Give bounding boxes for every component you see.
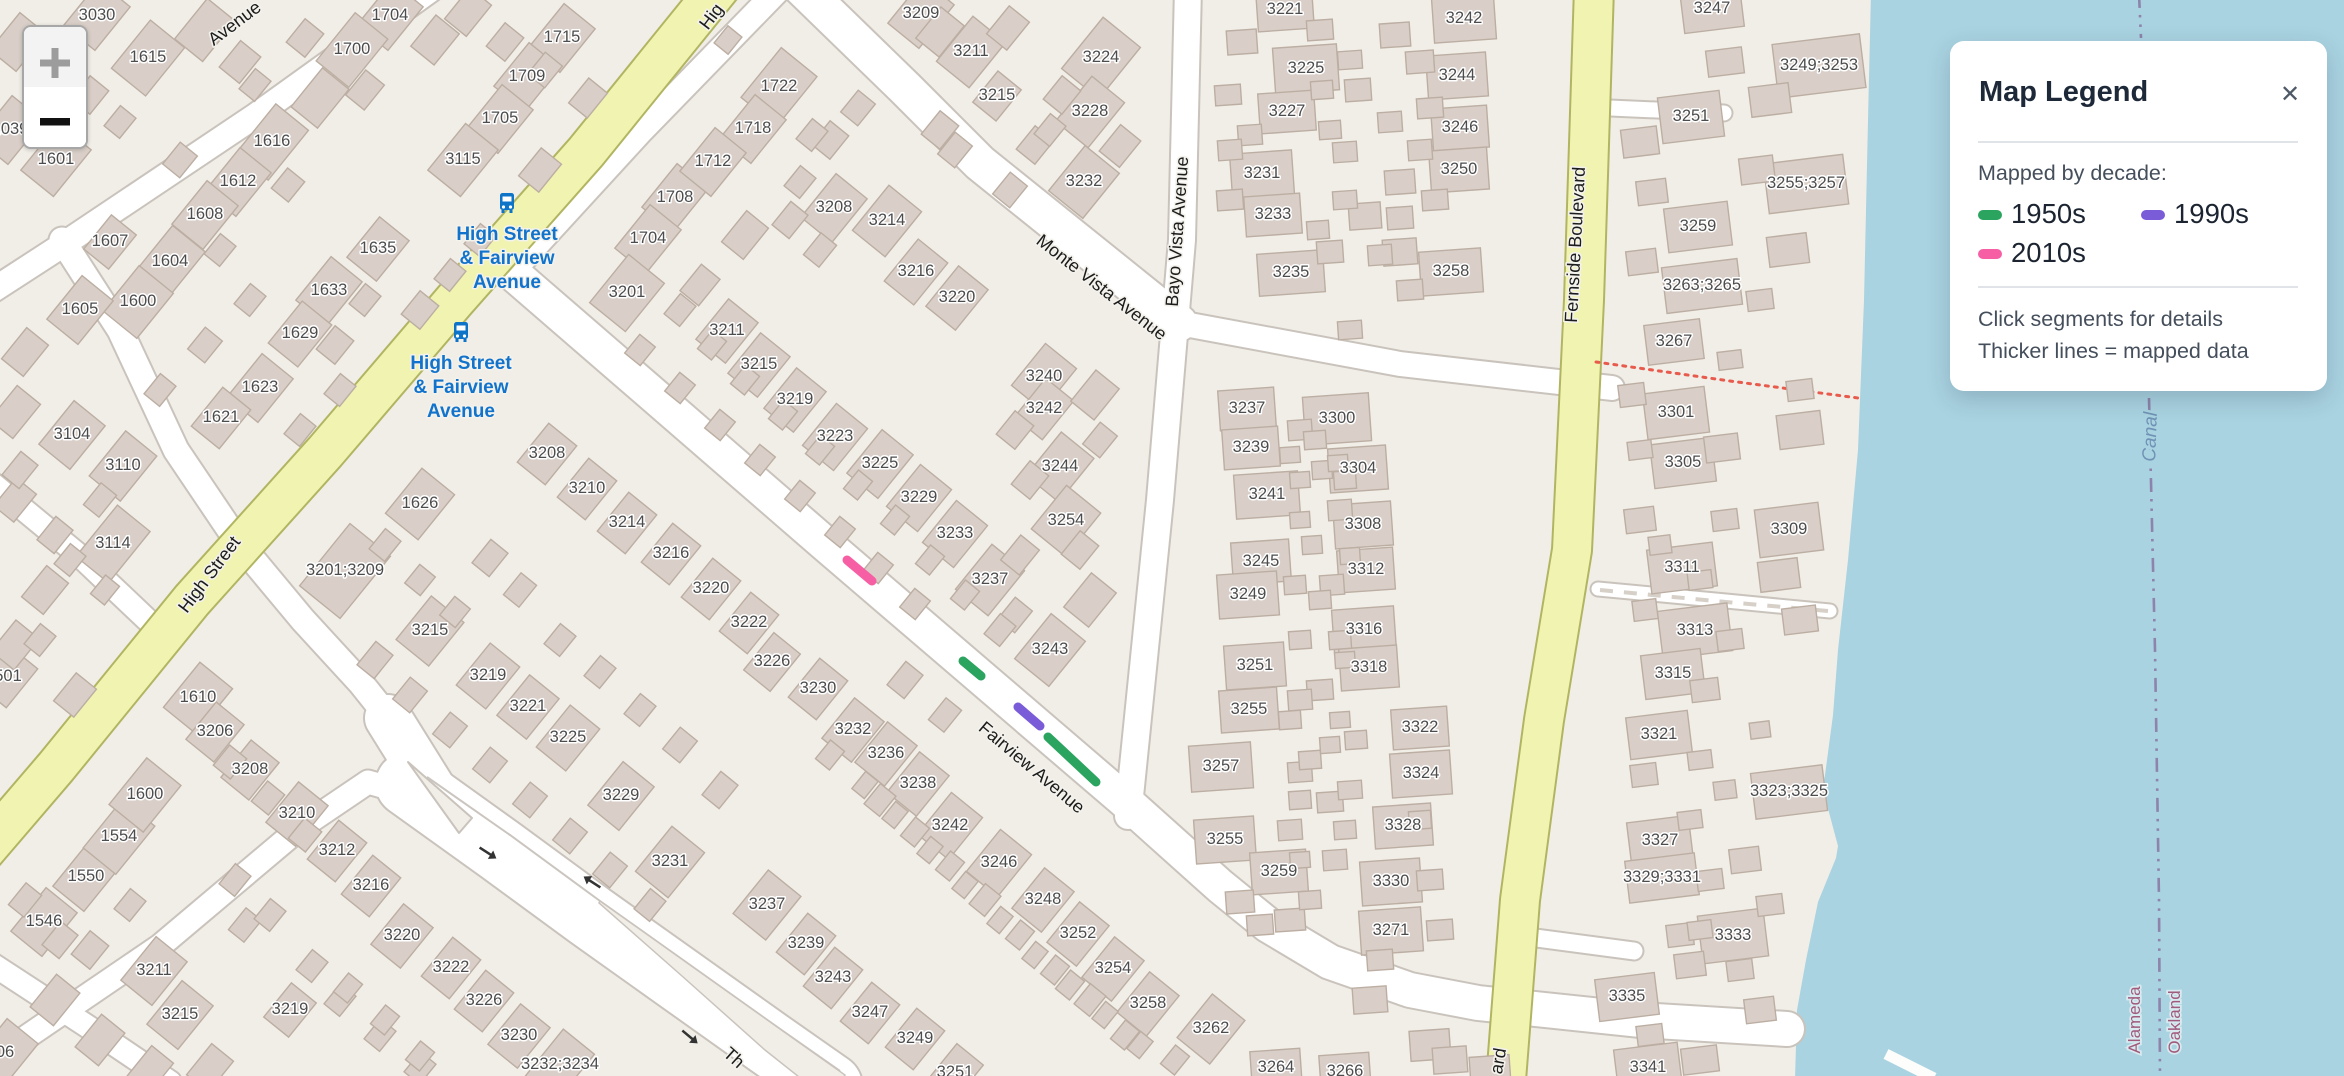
svg-text:3216: 3216 [353, 876, 390, 894]
svg-text:3219: 3219 [272, 1000, 309, 1018]
svg-text:3225: 3225 [1288, 59, 1325, 77]
svg-text:& Fairview: & Fairview [459, 248, 554, 269]
svg-text:3222: 3222 [731, 613, 768, 631]
svg-text:3329;3331: 3329;3331 [1623, 868, 1701, 886]
svg-text:& Fairview: & Fairview [413, 377, 508, 398]
svg-text:3304: 3304 [1340, 459, 1377, 477]
svg-text:3262: 3262 [1193, 1019, 1230, 1037]
svg-text:3313: 3313 [1677, 621, 1714, 639]
svg-text:3324: 3324 [1403, 764, 1440, 782]
svg-text:1600: 1600 [120, 292, 157, 310]
svg-text:3211: 3211 [709, 321, 744, 339]
svg-text:3239: 3239 [1233, 438, 1270, 456]
svg-text:3237: 3237 [1229, 399, 1266, 417]
svg-text:1601: 1601 [38, 150, 75, 168]
svg-text:3214: 3214 [869, 211, 906, 229]
svg-text:3255: 3255 [1231, 700, 1268, 718]
svg-text:1621: 1621 [203, 408, 240, 426]
svg-text:3242: 3242 [1026, 399, 1063, 417]
svg-text:3238: 3238 [900, 774, 937, 792]
svg-text:3233: 3233 [1255, 205, 1292, 223]
svg-text:1722: 1722 [761, 77, 798, 95]
svg-text:3251: 3251 [937, 1063, 974, 1076]
svg-text:3328: 3328 [1385, 816, 1422, 834]
svg-text:1629: 1629 [282, 324, 319, 342]
svg-text:3245: 3245 [1243, 552, 1280, 570]
svg-text:3315: 3315 [1655, 664, 1692, 682]
svg-text:3219: 3219 [470, 666, 507, 684]
svg-text:3210: 3210 [569, 479, 606, 497]
svg-text:1604: 1604 [152, 252, 189, 270]
svg-text:1623: 1623 [242, 378, 279, 396]
svg-text:3030: 3030 [79, 6, 116, 24]
svg-text:3321: 3321 [1641, 725, 1678, 743]
svg-text:3341: 3341 [1630, 1058, 1667, 1076]
svg-text:3216: 3216 [653, 544, 690, 562]
svg-text:3225: 3225 [550, 728, 587, 746]
svg-text:3259: 3259 [1680, 217, 1717, 235]
svg-text:1605: 1605 [62, 300, 99, 318]
svg-text:3215: 3215 [741, 355, 778, 373]
svg-text:3247: 3247 [1694, 0, 1731, 17]
svg-text:3209: 3209 [903, 4, 940, 22]
svg-text:3104: 3104 [54, 425, 91, 443]
svg-text:1712: 1712 [695, 152, 732, 170]
svg-text:1554: 1554 [101, 827, 138, 845]
svg-text:1610: 1610 [180, 688, 217, 706]
svg-text:3216: 3216 [898, 262, 935, 280]
svg-text:3239: 3239 [788, 934, 825, 952]
svg-text:3215: 3215 [979, 86, 1016, 104]
svg-text:3230: 3230 [501, 1026, 538, 1044]
svg-text:3241: 3241 [1249, 485, 1286, 503]
svg-text:3255: 3255 [1207, 830, 1244, 848]
svg-text:3242: 3242 [932, 816, 969, 834]
svg-text:1718: 1718 [735, 119, 772, 137]
svg-text:3252: 3252 [1060, 924, 1097, 942]
svg-text:3212: 3212 [319, 841, 356, 859]
svg-text:3312: 3312 [1348, 560, 1385, 578]
svg-text:3228: 3228 [1072, 102, 1109, 120]
svg-text:1607: 1607 [92, 232, 129, 250]
svg-text:3248: 3248 [1025, 890, 1062, 908]
svg-text:1612: 1612 [220, 172, 257, 190]
svg-text:3237: 3237 [972, 570, 1009, 588]
svg-text:3311: 3311 [1664, 558, 1699, 576]
svg-text:1705: 1705 [482, 109, 519, 127]
svg-text:3335: 3335 [1609, 987, 1646, 1005]
svg-text:3221: 3221 [1267, 0, 1304, 18]
svg-text:3247: 3247 [852, 1003, 889, 1021]
svg-text:3251: 3251 [1673, 107, 1710, 125]
svg-text:3330: 3330 [1373, 872, 1410, 890]
svg-text:1709: 1709 [509, 67, 546, 85]
svg-text:Oakland: Oakland [2165, 990, 2184, 1053]
svg-text:3305: 3305 [1665, 453, 1702, 471]
svg-text:3243: 3243 [1032, 640, 1069, 658]
svg-text:3211: 3211 [136, 961, 171, 979]
svg-text:3246: 3246 [1442, 118, 1479, 136]
svg-text:3251: 3251 [1237, 656, 1274, 674]
svg-text:3255;3257: 3255;3257 [1767, 174, 1845, 192]
svg-text:1635: 1635 [360, 239, 397, 257]
svg-text:1704: 1704 [630, 229, 667, 247]
svg-text:3220: 3220 [384, 926, 421, 944]
svg-text:3201: 3201 [609, 283, 646, 301]
svg-text:3232: 3232 [1066, 172, 1103, 190]
svg-text:3333: 3333 [1715, 926, 1752, 944]
svg-text:3236: 3236 [868, 744, 905, 762]
svg-text:3222: 3222 [433, 958, 470, 976]
svg-text:3235: 3235 [1273, 263, 1310, 281]
svg-text:1600: 1600 [127, 785, 164, 803]
svg-text:3206: 3206 [197, 722, 234, 740]
svg-text:1633: 1633 [311, 281, 348, 299]
svg-text:3221: 3221 [510, 697, 547, 715]
svg-text:3267: 3267 [1656, 332, 1693, 350]
svg-text:3210: 3210 [279, 804, 316, 822]
svg-text:3230: 3230 [800, 679, 837, 697]
svg-text:3264: 3264 [1258, 1058, 1295, 1076]
svg-text:3266: 3266 [1327, 1062, 1364, 1076]
svg-text:3308: 3308 [1345, 515, 1382, 533]
svg-text:3259: 3259 [1261, 862, 1298, 880]
svg-text:1615: 1615 [130, 48, 167, 66]
svg-text:3231: 3231 [1244, 164, 1281, 182]
svg-text:3208: 3208 [529, 444, 566, 462]
svg-text:3219: 3219 [777, 390, 814, 408]
svg-text:Avenue: Avenue [427, 401, 495, 422]
svg-text:3250: 3250 [1441, 160, 1478, 178]
svg-text:3244: 3244 [1439, 66, 1476, 84]
svg-text:3215: 3215 [162, 1005, 199, 1023]
svg-text:3229: 3229 [901, 488, 938, 506]
svg-text:3309: 3309 [1771, 520, 1808, 538]
svg-text:3242: 3242 [1446, 9, 1483, 27]
svg-text:3214: 3214 [609, 513, 646, 531]
svg-text:3232: 3232 [835, 720, 872, 738]
svg-text:1626: 1626 [402, 494, 439, 512]
svg-text:3233: 3233 [937, 524, 974, 542]
svg-text:Avenue: Avenue [473, 272, 541, 293]
svg-text:3227: 3227 [1269, 102, 1306, 120]
svg-text:3110: 3110 [105, 456, 140, 474]
svg-text:3201;3209: 3201;3209 [306, 561, 384, 579]
svg-text:3271: 3271 [1373, 921, 1410, 939]
svg-text:3249;3253: 3249;3253 [1780, 56, 1858, 74]
svg-text:3258: 3258 [1130, 994, 1167, 1012]
svg-text:3226: 3226 [466, 991, 503, 1009]
svg-text:3243: 3243 [815, 968, 852, 986]
svg-text:3220: 3220 [693, 579, 730, 597]
svg-text:1616: 1616 [254, 132, 291, 150]
svg-text:3258: 3258 [1433, 262, 1470, 280]
svg-text:1704: 1704 [372, 6, 409, 24]
svg-text:3318: 3318 [1351, 658, 1388, 676]
svg-text:3316: 3316 [1346, 620, 1383, 638]
svg-text:3301: 3301 [1658, 403, 1695, 421]
svg-text:High Street: High Street [410, 353, 512, 374]
svg-text:1546: 1546 [26, 912, 63, 930]
svg-text:3223: 3223 [817, 427, 854, 445]
svg-text:3244: 3244 [1042, 457, 1079, 475]
svg-text:3224: 3224 [1083, 48, 1120, 66]
svg-text:1708: 1708 [657, 188, 694, 206]
svg-text:1608: 1608 [187, 205, 224, 223]
svg-text:1700: 1700 [334, 40, 371, 58]
svg-text:3229: 3229 [603, 786, 640, 804]
svg-text:3232;3234: 3232;3234 [521, 1055, 599, 1073]
svg-text:3114: 3114 [95, 534, 130, 552]
svg-text:3246: 3246 [981, 853, 1018, 871]
svg-text:3323;3325: 3323;3325 [1750, 782, 1828, 800]
svg-text:3115: 3115 [445, 150, 480, 168]
svg-text:3231: 3231 [652, 852, 689, 870]
svg-text:3240: 3240 [1026, 367, 1063, 385]
svg-text:3211: 3211 [953, 42, 988, 60]
svg-text:Alameda: Alameda [2125, 986, 2144, 1054]
svg-text:3263;3265: 3263;3265 [1663, 276, 1741, 294]
svg-text:Canal: Canal [2139, 411, 2162, 462]
svg-text:3237: 3237 [749, 895, 786, 913]
svg-text:3257: 3257 [1203, 757, 1240, 775]
svg-text:3322: 3322 [1402, 718, 1439, 736]
svg-text:3208: 3208 [816, 198, 853, 216]
svg-text:501: 501 [0, 667, 22, 685]
svg-text:3220: 3220 [939, 288, 976, 306]
svg-text:3208: 3208 [232, 760, 269, 778]
svg-text:3254: 3254 [1095, 959, 1132, 977]
svg-text:3215: 3215 [412, 621, 449, 639]
svg-text:3225: 3225 [862, 454, 899, 472]
svg-text:3327: 3327 [1642, 831, 1679, 849]
svg-text:High Street: High Street [456, 224, 558, 245]
svg-text:3254: 3254 [1048, 511, 1085, 529]
svg-text:1715: 1715 [544, 28, 581, 46]
svg-text:3249: 3249 [1230, 585, 1267, 603]
svg-text:1550: 1550 [68, 867, 105, 885]
svg-text:3300: 3300 [1319, 409, 1356, 427]
svg-text:06: 06 [0, 1043, 14, 1061]
svg-text:3249: 3249 [897, 1029, 934, 1047]
svg-text:3226: 3226 [754, 652, 791, 670]
